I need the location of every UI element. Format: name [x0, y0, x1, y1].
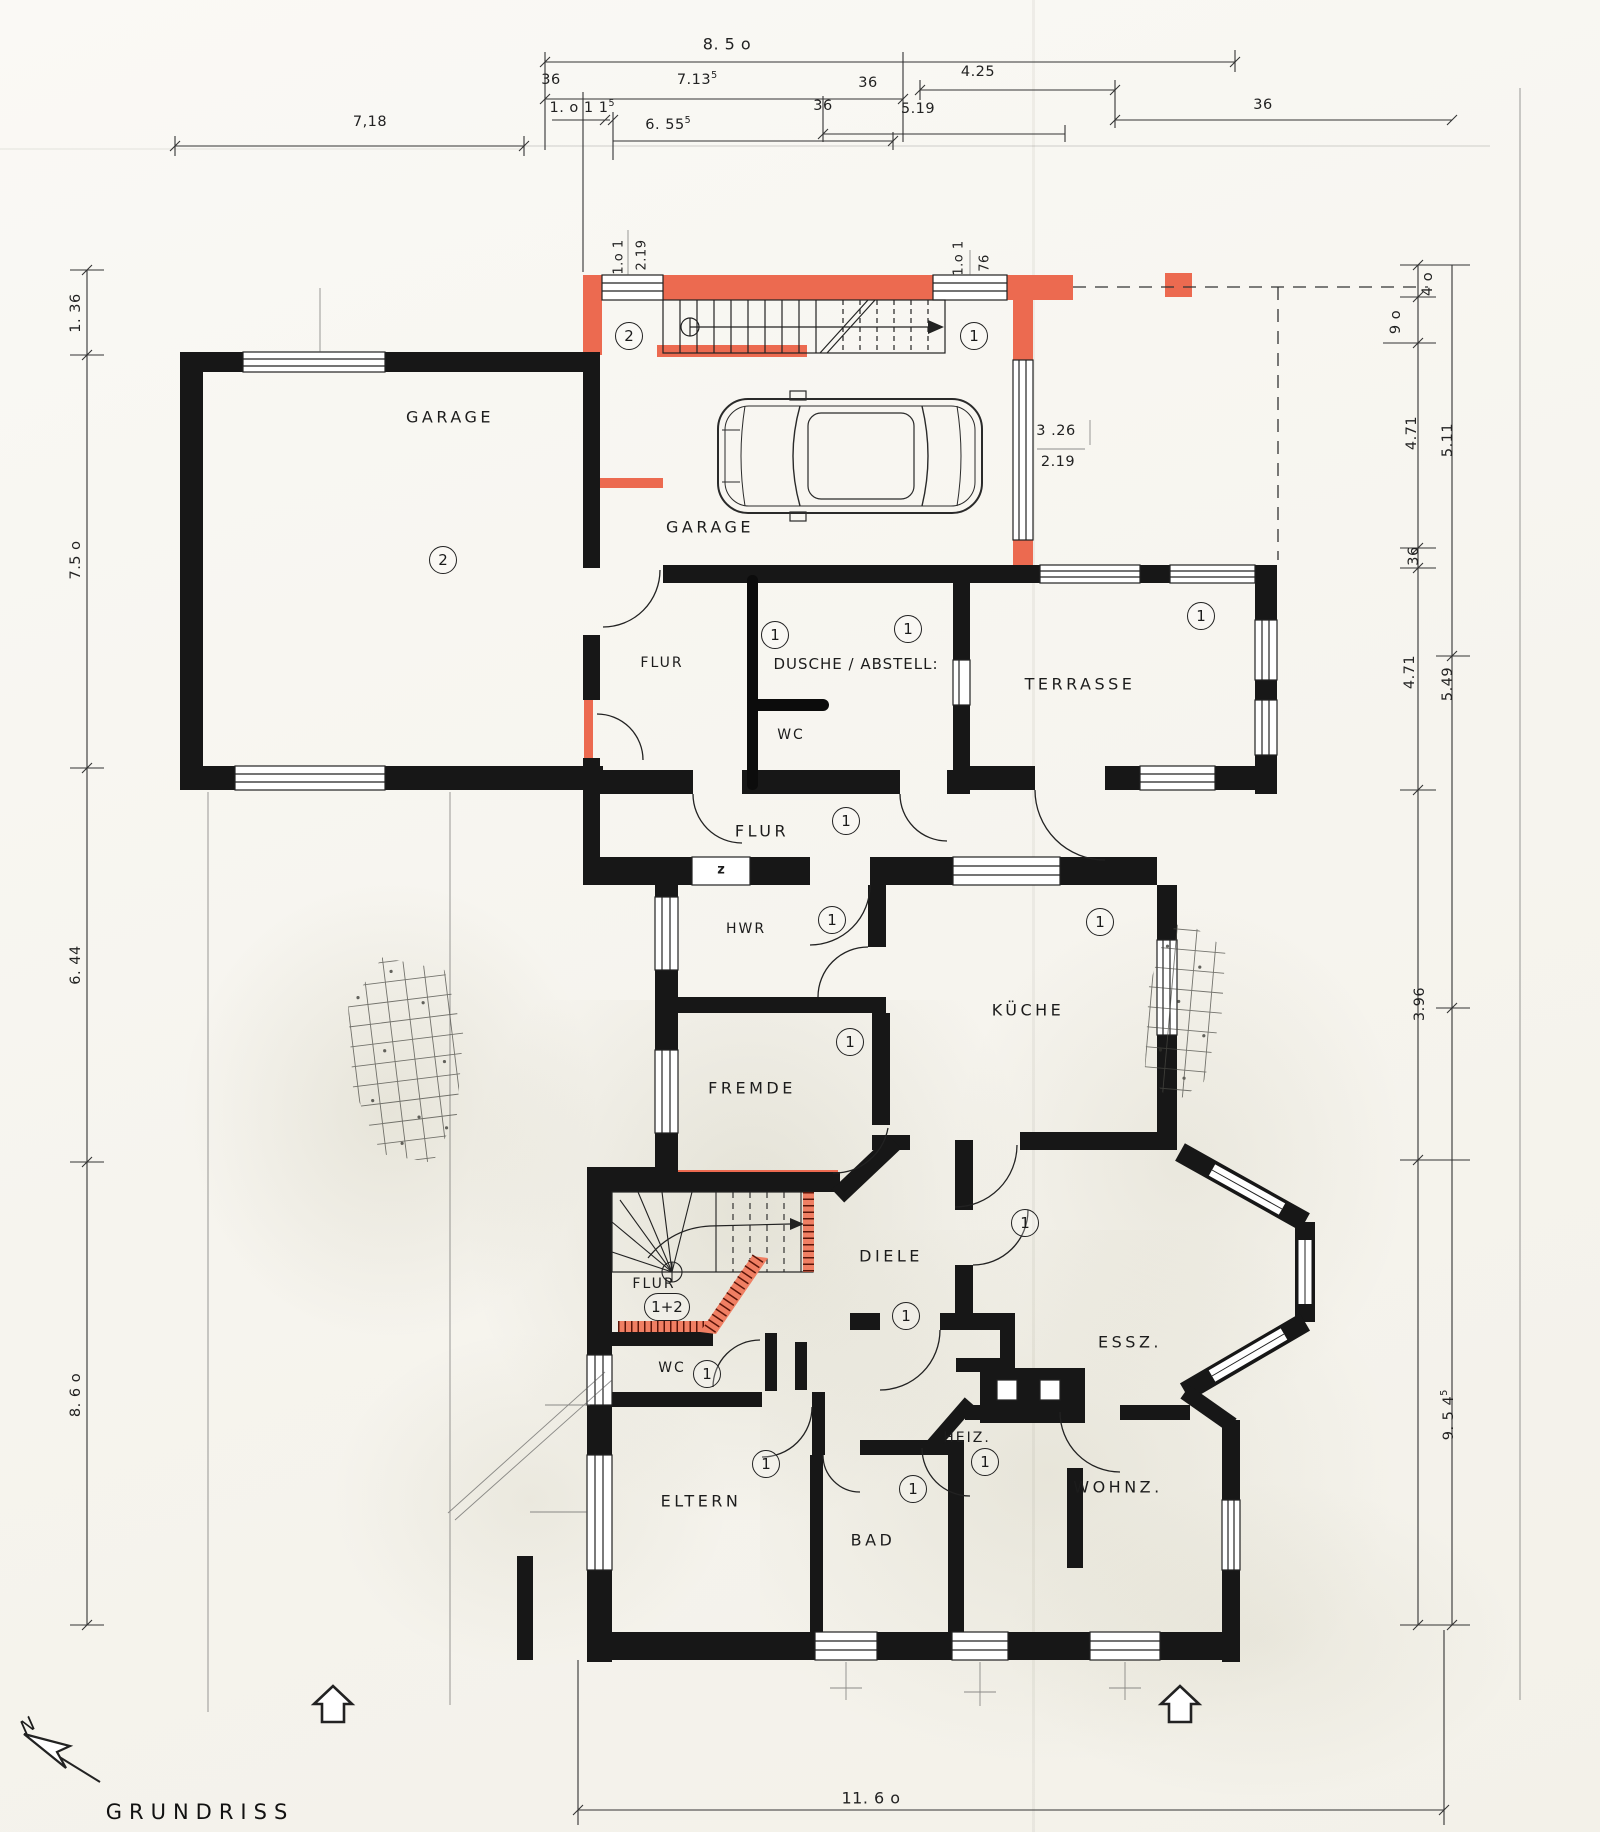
room-label-diele: DIELE [859, 1247, 923, 1266]
badge-eltern: 1 [752, 1450, 780, 1478]
badge-dusche-left: 1 [761, 621, 789, 649]
dim-top-850: 8. 5 o [703, 35, 751, 54]
dim-top-6555-main: 6. 55 [645, 117, 684, 133]
dim-right-549: 5.49 [1440, 667, 1456, 701]
car [718, 391, 982, 521]
badge-hwr: 1 [818, 906, 846, 934]
dim-right-4o: 4 o [1420, 272, 1436, 296]
dim-top-425: 4.25 [961, 64, 995, 80]
dim-top-1o115: 1. o 1 15 [549, 98, 614, 116]
dim-left-136: 1. 36 [68, 293, 84, 332]
dim-inner-1o1-a: 1.o 1 [612, 239, 627, 274]
badge-essz: 1 [1011, 1209, 1039, 1237]
dim-top-6555: 6. 555 [645, 115, 690, 133]
room-label-flur-mid: FLUR [735, 822, 789, 841]
room-label-hwr: HWR [726, 921, 766, 937]
dim-top-718: 7,18 [353, 114, 387, 130]
badge-wc-lower: 1 [693, 1360, 721, 1388]
dim-right-9545-main: 9. 5 4 [1441, 1396, 1457, 1441]
dim-left-86o: 8. 6 o [68, 1373, 84, 1417]
dim-right-9545-sup: 5 [1439, 1390, 1450, 1396]
badge-flur-lower: 1+2 [644, 1293, 690, 1321]
dim-inner-326: 3 .26 [1036, 423, 1075, 439]
bay-windows [1212, 1170, 1305, 1376]
meter-box-label: z [717, 863, 725, 878]
dim-right-511: 5.11 [1440, 423, 1456, 457]
dim-top-7135: 7.135 [677, 70, 717, 88]
badge-garage-left: 2 [429, 546, 457, 574]
badge-fremde: 1 [836, 1028, 864, 1056]
room-label-flur-lower: FLUR [632, 1276, 675, 1292]
badge-dusche-right: 1 [894, 615, 922, 643]
dim-inner-219-b: 2.19 [1041, 454, 1075, 470]
marker-annotation [747, 575, 829, 790]
page-title: GRUNDRISS [106, 1800, 295, 1824]
room-label-flur-upper: FLUR [640, 655, 683, 671]
dim-top-7135-sup: 5 [711, 70, 717, 81]
badge-terrasse: 1 [1187, 602, 1215, 630]
dim-top-519: 5.19 [901, 101, 935, 117]
entrance-arrow-icon [1161, 1686, 1199, 1722]
dim-right-9o: 9 o [1388, 310, 1404, 334]
dim-right-396: 3.96 [1412, 987, 1428, 1021]
dim-right-36: 36 [1406, 546, 1422, 565]
entrance-arrow-icon [314, 1686, 352, 1722]
dimension-lines [70, 50, 1470, 1825]
room-label-eltern: ELTERN [661, 1492, 742, 1511]
dim-top-36-d: 36 [1253, 97, 1272, 113]
room-label-wc-upper: WC [777, 727, 805, 743]
dim-top-6555-sup: 5 [685, 115, 691, 126]
dim-top-7135-main: 7.13 [677, 72, 711, 88]
dim-top-1o115-sup: 5 [608, 98, 614, 109]
north-arrow-icon [24, 1734, 100, 1782]
dim-left-644: 6. 44 [68, 945, 84, 984]
floorplan-drawing [0, 0, 1600, 1832]
badge-heiz: 1 [971, 1448, 999, 1476]
badge-bad: 1 [899, 1475, 927, 1503]
room-label-heiz: HEIZ. [943, 1430, 991, 1446]
dim-inner-219-a: 2.19 [635, 240, 650, 271]
badge-stair-top: 2 [615, 322, 643, 350]
dim-top-36-c: 36 [813, 98, 832, 114]
guide-lines [208, 88, 1520, 1712]
room-label-bad: BAD [851, 1531, 896, 1550]
dim-inner-1o1-b: 1.o 1 [952, 240, 967, 275]
room-label-garage-top: GARAGE [666, 518, 754, 537]
room-label-wc-lower: WC [658, 1360, 686, 1376]
shrub-icon [1131, 911, 1238, 1113]
dim-top-1o115-main: 1. o 1 1 [549, 100, 608, 116]
staircase-lower [612, 1192, 813, 1282]
room-label-kueche: KÜCHE [992, 1001, 1065, 1020]
room-label-fremde: FREMDE [708, 1079, 796, 1098]
dim-inner-76: 76 [978, 254, 993, 272]
room-label-garage-left: GARAGE [406, 408, 494, 427]
dim-left-75o: 7.5 o [68, 540, 84, 579]
windows-layer [235, 275, 1277, 1660]
dim-top-36-b: 36 [858, 75, 877, 91]
dim-right-9545: 9. 5 45 [1439, 1390, 1457, 1441]
shrub-icon [327, 942, 493, 1177]
room-label-terrasse: TERRASSE [1025, 675, 1136, 694]
room-label-essz: ESSZ. [1098, 1333, 1162, 1352]
badge-flur-mid: 1 [832, 807, 860, 835]
walls-layer [180, 352, 1277, 1662]
room-label-wohnz: WOHNZ. [1073, 1478, 1162, 1497]
dim-bottom-116o: 11. 6 o [841, 1789, 900, 1808]
dim-right-471-b: 4.71 [1402, 655, 1418, 689]
badge-garage-top: 1 [960, 322, 988, 350]
dashed-lines [1073, 287, 1428, 560]
dim-right-471-a: 4.71 [1404, 416, 1420, 450]
room-label-dusche-abstell: DUSCHE / ABSTELL: [773, 655, 938, 673]
floorplan-page: GARAGE GARAGE FLUR DUSCHE / ABSTELL: WC … [0, 0, 1600, 1832]
dim-top-36-a: 36 [541, 72, 560, 88]
badge-kueche: 1 [1086, 908, 1114, 936]
badge-diele: 1 [892, 1302, 920, 1330]
